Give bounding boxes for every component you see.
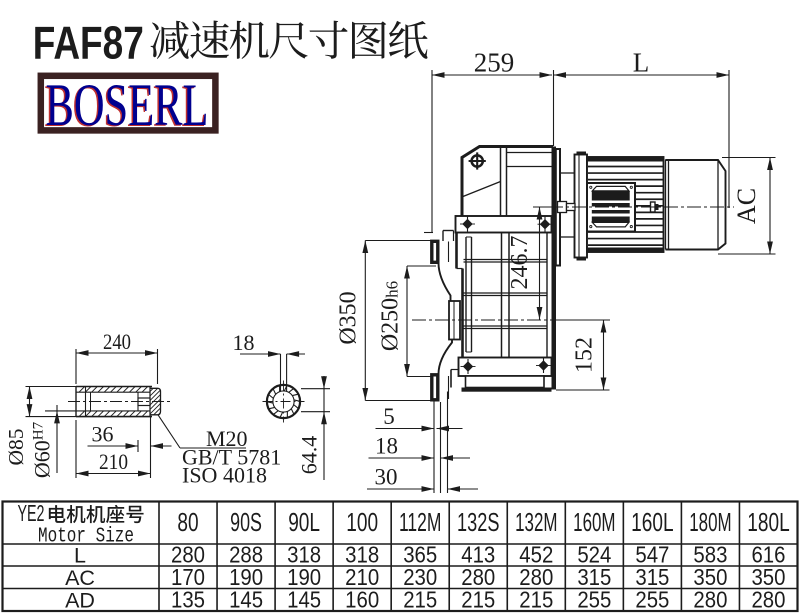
svg-text:Ø350: Ø350 xyxy=(336,291,362,344)
svg-text:215: 215 xyxy=(519,587,553,613)
svg-text:18: 18 xyxy=(233,330,255,355)
svg-text:Motor Size: Motor Size xyxy=(38,526,134,549)
svg-text:240: 240 xyxy=(103,329,131,354)
svg-text:FAF87: FAF87 xyxy=(33,17,144,69)
svg-text:Ø85: Ø85 xyxy=(4,428,28,465)
svg-text:280: 280 xyxy=(693,587,727,613)
svg-text:30: 30 xyxy=(375,465,398,490)
svg-text:180M: 180M xyxy=(689,507,731,537)
svg-text:132S: 132S xyxy=(457,507,499,537)
svg-text:135: 135 xyxy=(171,587,205,613)
svg-text:18: 18 xyxy=(375,434,398,459)
svg-text:L: L xyxy=(74,544,86,568)
svg-text:AD: AD xyxy=(65,589,95,613)
svg-text:259: 259 xyxy=(474,48,515,78)
svg-text:36: 36 xyxy=(92,422,114,447)
svg-text:152: 152 xyxy=(572,337,598,373)
svg-text:145: 145 xyxy=(287,587,321,613)
svg-text:180L: 180L xyxy=(747,507,789,537)
svg-text:90L: 90L xyxy=(288,507,320,537)
svg-text:160L: 160L xyxy=(631,507,673,537)
svg-text:AC: AC xyxy=(732,188,761,224)
svg-text:255: 255 xyxy=(635,587,669,613)
svg-text:ISO 4018: ISO 4018 xyxy=(182,463,267,488)
svg-text:L: L xyxy=(633,48,650,78)
svg-text:BOSERL: BOSERL xyxy=(46,72,209,138)
svg-text:255: 255 xyxy=(577,587,611,613)
svg-text:132M: 132M xyxy=(515,507,557,537)
svg-text:80: 80 xyxy=(177,507,198,537)
svg-text:160M: 160M xyxy=(573,507,615,537)
svg-text:215: 215 xyxy=(403,587,437,613)
svg-text:215: 215 xyxy=(461,587,495,613)
svg-text:AC: AC xyxy=(65,566,95,590)
svg-text:64.4: 64.4 xyxy=(297,436,322,475)
svg-text:246.7: 246.7 xyxy=(507,236,533,290)
svg-text:90S: 90S xyxy=(230,507,262,537)
svg-text:280: 280 xyxy=(751,587,785,613)
svg-text:112M: 112M xyxy=(399,507,441,537)
svg-text:210: 210 xyxy=(99,449,128,474)
svg-text:160: 160 xyxy=(345,587,379,613)
svg-text:YE2: YE2 xyxy=(18,500,45,526)
svg-text:100: 100 xyxy=(346,507,378,537)
svg-text:5: 5 xyxy=(383,404,395,429)
svg-text:145: 145 xyxy=(229,587,263,613)
